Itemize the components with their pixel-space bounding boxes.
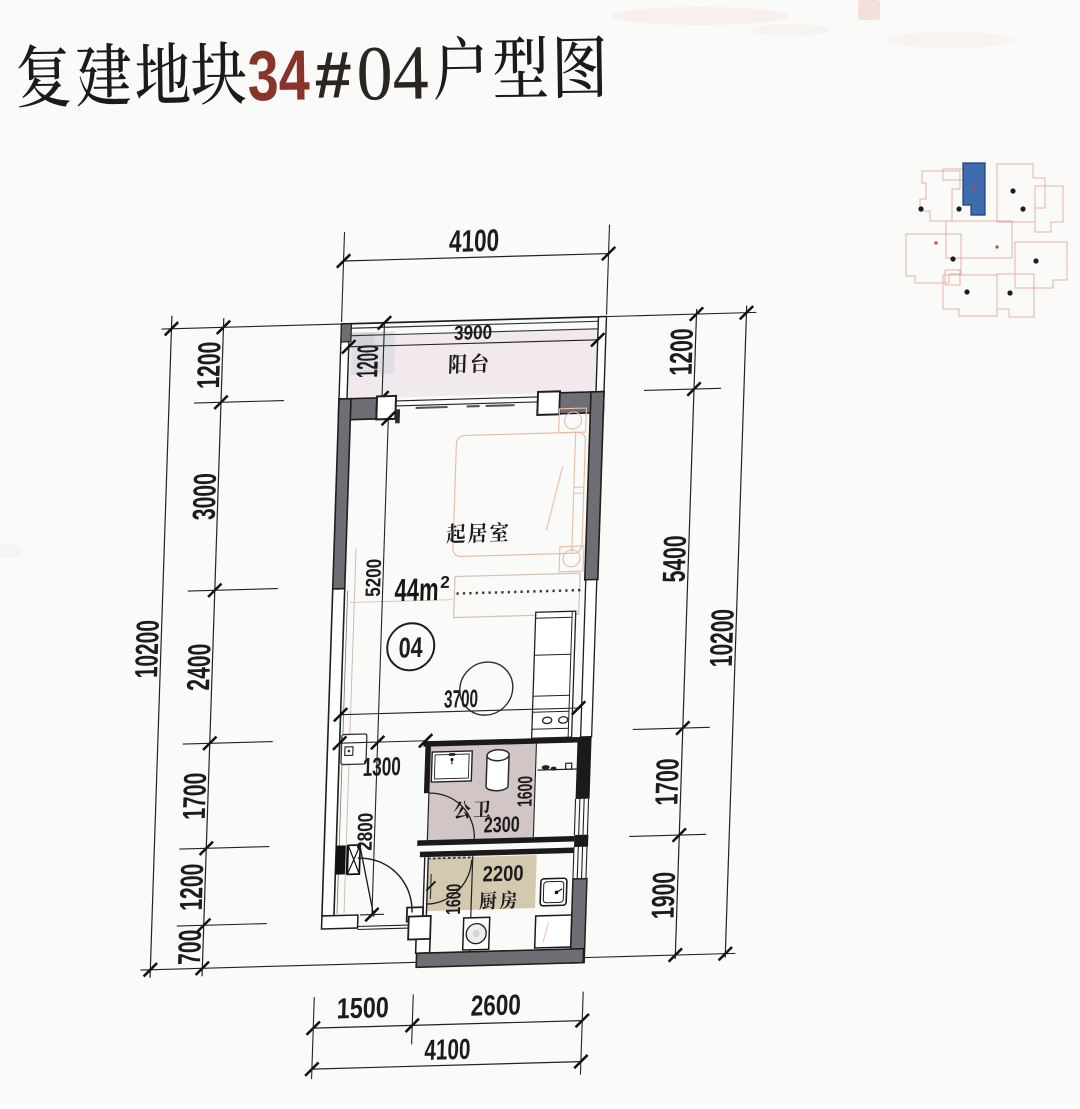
svg-text:700: 700 xyxy=(171,929,208,965)
svg-text:04: 04 xyxy=(398,632,423,665)
svg-text:10200: 10200 xyxy=(703,609,741,668)
svg-text:3700: 3700 xyxy=(444,685,479,714)
svg-text:3000: 3000 xyxy=(186,473,224,521)
svg-text:10200: 10200 xyxy=(128,620,166,679)
svg-text:1200: 1200 xyxy=(351,344,385,378)
svg-text:4100: 4100 xyxy=(424,1034,471,1067)
svg-text:4100: 4100 xyxy=(449,223,500,259)
svg-text:1200: 1200 xyxy=(190,341,228,389)
svg-text:2300: 2300 xyxy=(483,812,520,838)
svg-text:1200: 1200 xyxy=(173,863,211,911)
svg-text:44m: 44m xyxy=(394,571,439,608)
svg-text:34: 34 xyxy=(247,36,311,116)
svg-text:1700: 1700 xyxy=(176,772,214,820)
svg-text:#: # xyxy=(314,37,352,112)
svg-text:1500: 1500 xyxy=(336,992,389,1025)
svg-text:1600: 1600 xyxy=(513,776,537,808)
svg-text:1900: 1900 xyxy=(645,871,683,919)
svg-text:3900: 3900 xyxy=(454,322,493,345)
svg-text:1200: 1200 xyxy=(662,328,700,376)
svg-text:2400: 2400 xyxy=(180,643,218,691)
svg-text:1300: 1300 xyxy=(362,751,401,782)
svg-text:2600: 2600 xyxy=(470,989,521,1022)
svg-text:5200: 5200 xyxy=(362,559,386,598)
svg-text:5400: 5400 xyxy=(656,535,694,583)
svg-text:04: 04 xyxy=(356,28,429,116)
svg-text:1700: 1700 xyxy=(648,758,686,806)
svg-text:2: 2 xyxy=(440,573,450,592)
svg-text:1600: 1600 xyxy=(442,883,466,915)
svg-text:2200: 2200 xyxy=(482,860,524,886)
svg-text:2800: 2800 xyxy=(354,813,378,852)
